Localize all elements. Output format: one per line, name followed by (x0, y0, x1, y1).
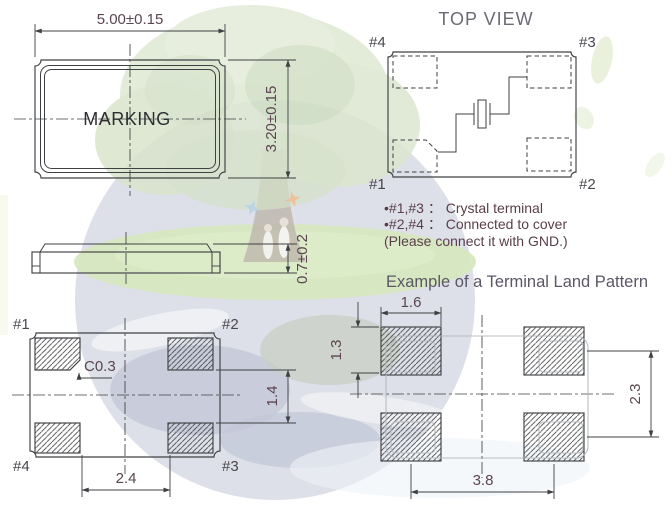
top-view-title: TOP VIEW (438, 9, 533, 29)
dim-height-label: 3.20±0.15 (263, 86, 280, 153)
child-figure-head (264, 224, 272, 232)
marking-label: MARKING (83, 109, 171, 129)
child-figure (263, 231, 273, 259)
pad-3-hatched (168, 423, 213, 453)
lead-to-pad1 (438, 114, 474, 152)
left-edge-tint (0, 195, 8, 335)
note-line-1: •#1,#3 ： Crystal terminal (384, 200, 543, 216)
pin-label-3: #3 (579, 34, 596, 51)
technical-drawing: MARKING 5.00±0.15 3.20±0.15 0.7±0. (0, 0, 672, 513)
dim-pad-height-label: 1.3 (328, 340, 345, 361)
crystal-body (478, 100, 486, 128)
dim-pad-width-label: 1.6 (401, 294, 422, 311)
terminal-notes: •#1,#3 ： Crystal terminal •#2,#4 ： Conne… (384, 200, 568, 249)
child-figure-head (280, 218, 289, 227)
dim-vertical-pitch-label: 2.3 (627, 384, 644, 405)
pin-label-1: #1 (13, 316, 30, 333)
pin-label-1: #1 (369, 176, 386, 193)
pin-label-2: #2 (222, 316, 239, 333)
note-line-3: (Please connect it with GND.) (384, 233, 568, 249)
pin-label-4: #4 (369, 34, 386, 51)
pad-4-dashed (393, 56, 437, 88)
note-line-2: •#2,#4 ： Connected to cover (384, 216, 567, 232)
land-pad-tl (381, 327, 441, 375)
dim-thickness-label: 0.7±0.2 (294, 234, 311, 284)
land-pattern-title: Example of a Terminal Land Pattern (386, 273, 648, 291)
dim-gap-h-label: 2.4 (116, 470, 137, 487)
pin-label-4: #4 (13, 458, 30, 475)
datasheet-page: MARKING 5.00±0.15 3.20±0.15 0.7±0. (0, 0, 672, 513)
dim-horizontal-pitch-label: 3.8 (473, 472, 494, 489)
lead-to-pad3 (490, 77, 527, 114)
crystal-symbol (438, 77, 527, 152)
pad-2-hatched (168, 338, 213, 370)
pad-2-dashed (527, 138, 571, 171)
dim-width-label: 5.00±0.15 (97, 11, 164, 28)
leaf (570, 103, 598, 133)
pad-1-hatched (35, 338, 80, 370)
land-pad-tr (524, 327, 584, 375)
pad-3-dashed (527, 56, 571, 88)
pin-label-2: #2 (579, 176, 596, 193)
dim-gap-v-label: 1.4 (264, 386, 281, 407)
pin-label-3: #3 (222, 458, 239, 475)
leaf (641, 150, 669, 181)
land-pad-br (524, 413, 584, 461)
pad-4-hatched (35, 423, 80, 453)
chamfer-label: C0.3 (84, 358, 116, 375)
land-pad-bl (381, 413, 441, 461)
